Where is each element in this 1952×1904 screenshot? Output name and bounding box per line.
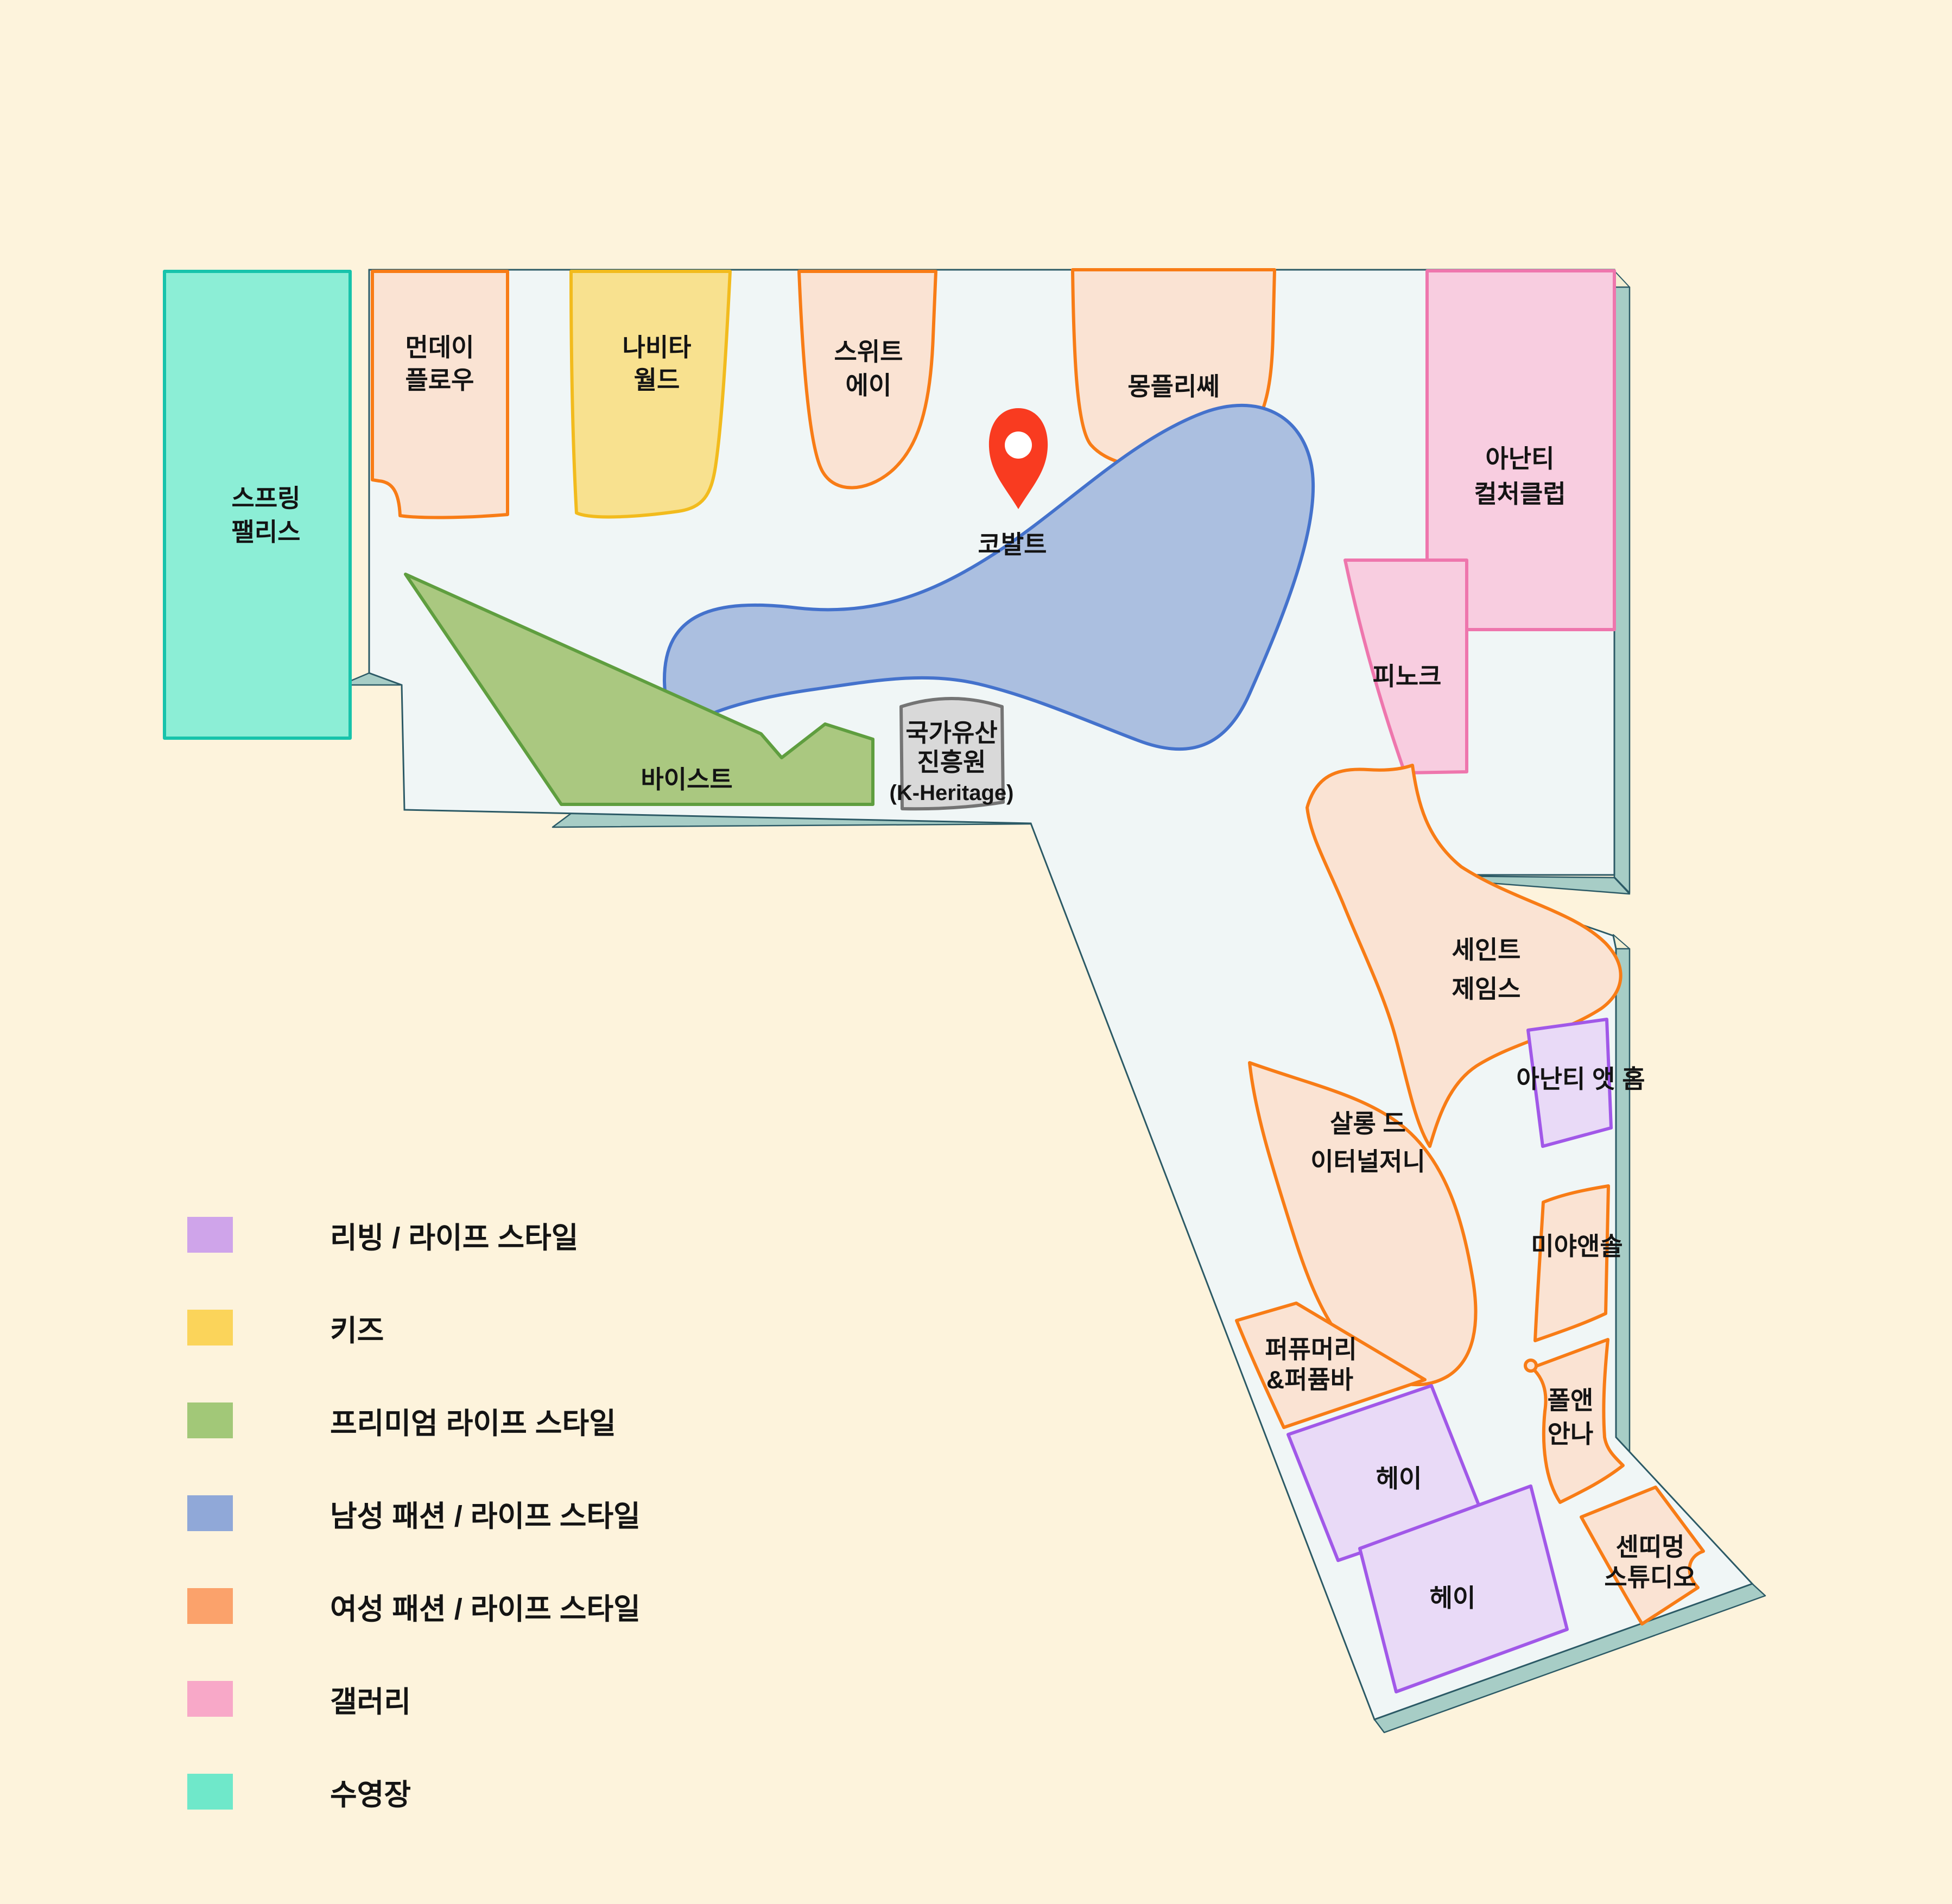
shop-navita-world-shape[interactable] — [571, 271, 730, 517]
legend-label: 키즈 — [330, 1306, 384, 1349]
shop-perfumery-label: 퍼퓨머리 — [1265, 1335, 1357, 1363]
shop-sweet-a-label: 스위트 — [834, 338, 903, 366]
legend-item-living: 리빙 / 라이프 스타일 — [187, 1217, 641, 1253]
shop-monday-flow-label: 플로우 — [405, 366, 474, 394]
legend-swatch-living-icon — [187, 1217, 233, 1253]
shop-miya-and-sol-shape[interactable] — [1535, 1186, 1608, 1341]
legend-label: 프리미엄 라이프 스타일 — [330, 1399, 616, 1442]
shop-paul-and-anna-label: 폴앤 — [1548, 1386, 1594, 1414]
shop-spring-palace-label: 팰리스 — [232, 518, 301, 546]
shop-byst-label: 바이스트 — [641, 765, 732, 794]
shop-monday-flow-label: 먼데이 — [405, 333, 474, 361]
legend-label: 갤러리 — [330, 1678, 411, 1721]
shop-montplisse-label: 몽플리쎄 — [1127, 372, 1219, 401]
shop-perfumery-label: &퍼퓸바 — [1266, 1366, 1353, 1394]
legend-swatch-kids-icon — [187, 1310, 233, 1346]
legend-swatch-gallery-icon — [187, 1681, 233, 1717]
shop-k-heritage-label: (K-Heritage) — [890, 781, 1014, 805]
shop-ananti-at-home-label: 아난티 앳 홈 — [1516, 1065, 1645, 1093]
legend: 리빙 / 라이프 스타일 키즈 프리미엄 라이프 스타일 남성 패션 / 라이프… — [187, 1217, 641, 1867]
legend-label: 리빙 / 라이프 스타일 — [330, 1214, 578, 1256]
wall-right-upper — [1614, 287, 1630, 893]
shop-cobalt-label: 코발트 — [978, 530, 1047, 558]
legend-item-premium: 프리미엄 라이프 스타일 — [187, 1402, 641, 1438]
shop-k-heritage-label: 국가유산 — [905, 719, 997, 747]
legend-swatch-mens-icon — [187, 1495, 233, 1531]
shop-sweet-a-label: 에이 — [846, 371, 892, 399]
shop-salon-label: 이터널저니 — [1310, 1147, 1425, 1176]
legend-item-gallery: 갤러리 — [187, 1681, 641, 1717]
legend-swatch-womens-icon — [187, 1588, 233, 1624]
floor-map-page: 스프링 팰리스 먼데이 플로우 나비타 월드 스위트 에이 몽플리쎄 아난티 컬… — [0, 0, 1952, 1904]
legend-swatch-pool-icon — [187, 1774, 233, 1810]
legend-item-mens: 남성 패션 / 라이프 스타일 — [187, 1495, 641, 1531]
paul-and-anna-door-dot — [1525, 1360, 1536, 1371]
shop-sentiment-studio-label: 센띠멍 — [1616, 1533, 1685, 1561]
legend-label: 남성 패션 / 라이프 스타일 — [330, 1492, 641, 1535]
shop-sentiment-studio-label: 스튜디오 — [1604, 1563, 1696, 1591]
shop-saint-james-label: 제임스 — [1452, 975, 1521, 1003]
shop-spring-palace-label: 스프링 — [232, 484, 301, 512]
shop-pinoke-label: 피노크 — [1373, 662, 1442, 690]
shop-salon-label: 살롱 드 — [1330, 1109, 1406, 1138]
shop-navita-world-label: 월드 — [634, 366, 680, 394]
legend-item-pool: 수영장 — [187, 1774, 641, 1810]
shop-paul-and-anna-label: 안나 — [1548, 1420, 1594, 1448]
legend-label: 수영장 — [330, 1770, 411, 1813]
shop-k-heritage-label: 진흥원 — [917, 748, 986, 776]
shop-miya-and-sol-label: 미야앤솔 — [1531, 1232, 1623, 1260]
legend-label: 여성 패션 / 라이프 스타일 — [330, 1585, 641, 1628]
shop-hey-upper-label: 헤이 — [1376, 1464, 1422, 1493]
shop-navita-world-label: 나비타 — [623, 333, 692, 361]
shop-monday-flow-shape[interactable] — [372, 271, 508, 518]
shop-ananti-culture-club-label: 컬처클럽 — [1474, 480, 1566, 508]
shop-hey-lower-label: 헤이 — [1430, 1584, 1476, 1612]
legend-item-womens: 여성 패션 / 라이프 스타일 — [187, 1588, 641, 1624]
shop-saint-james-label: 세인트 — [1452, 936, 1521, 964]
shop-ananti-culture-club-label: 아난티 — [1486, 445, 1555, 473]
legend-swatch-premium-icon — [187, 1402, 233, 1438]
wall-bevel-top-right — [1614, 271, 1630, 287]
legend-item-kids: 키즈 — [187, 1310, 641, 1346]
